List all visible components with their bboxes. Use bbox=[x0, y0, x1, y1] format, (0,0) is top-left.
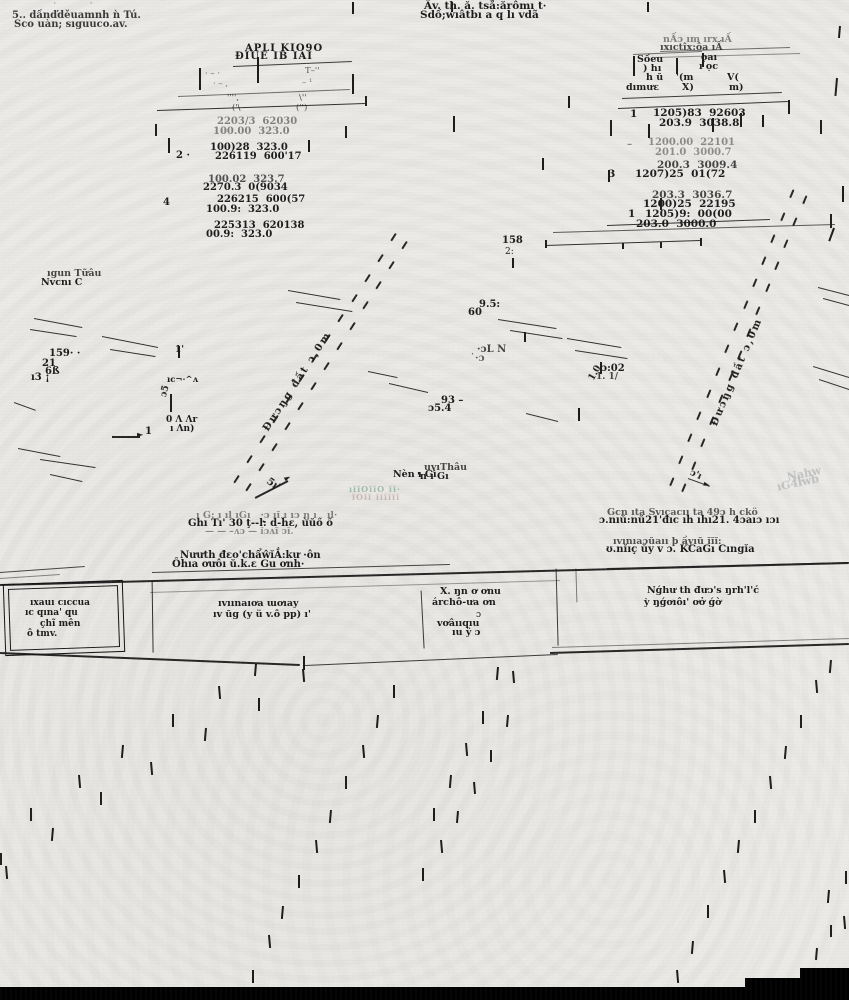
boundary-tick bbox=[440, 840, 443, 853]
rule-line bbox=[34, 318, 82, 328]
arrow-head-icon: ► bbox=[703, 480, 711, 490]
signature-col-line: X. ŋn ơ ơnu bbox=[440, 587, 501, 597]
rule-line bbox=[30, 329, 76, 337]
boundary-tick bbox=[845, 871, 847, 884]
rule-line bbox=[296, 302, 352, 312]
road-dash bbox=[761, 256, 766, 265]
boundary-tick bbox=[842, 186, 844, 202]
boundary-tick bbox=[345, 126, 347, 138]
road-dash bbox=[271, 442, 277, 451]
rule-line bbox=[0, 566, 85, 573]
road-dash bbox=[752, 278, 757, 287]
boundary-tick bbox=[78, 775, 81, 788]
boundary-tick bbox=[365, 96, 367, 106]
boundary-tick bbox=[449, 775, 452, 788]
boundary-tick bbox=[707, 905, 709, 918]
rule-line bbox=[813, 366, 849, 378]
rule-line bbox=[510, 330, 562, 339]
signature-col-line: árchô-ưa ơn bbox=[432, 598, 496, 608]
road-dash bbox=[774, 261, 779, 270]
note-ghost: — — –ʌɔ — ĭɔʌĭ ɔĭ. bbox=[205, 528, 294, 537]
road-dash bbox=[376, 281, 382, 290]
coord-row-index: 2 · bbox=[176, 151, 190, 161]
boundary-tick bbox=[829, 660, 832, 673]
rule-line bbox=[288, 290, 340, 300]
boundary-tick bbox=[815, 680, 818, 693]
rule-line bbox=[40, 459, 95, 468]
boundary-tick bbox=[676, 970, 679, 983]
landuse-code: ˙·ɔ bbox=[470, 354, 485, 364]
rule-line bbox=[567, 338, 621, 348]
signature-box-line: ıxauı cıccua bbox=[30, 599, 90, 608]
rule-line bbox=[819, 379, 849, 390]
road-dash bbox=[802, 195, 807, 204]
scanned-document-page: 5.. dấnďděuamnh ǹ Tú.Sco uàn; sıguuco.av… bbox=[0, 0, 849, 1000]
boundary-tick bbox=[506, 715, 509, 727]
rule-line bbox=[102, 336, 158, 348]
road-dash bbox=[349, 321, 355, 330]
boundary-tick bbox=[622, 243, 624, 249]
boundary-tick bbox=[204, 728, 207, 741]
road-dash bbox=[678, 455, 683, 464]
boundary-tick bbox=[834, 78, 838, 96]
road-dash bbox=[245, 483, 251, 492]
boundary-tick bbox=[843, 916, 846, 929]
scan-edge-bar bbox=[800, 968, 849, 1000]
boundary-tick bbox=[456, 811, 459, 823]
boundary-tick bbox=[633, 56, 635, 76]
boundary-tick bbox=[393, 685, 395, 698]
boundary-tick bbox=[524, 332, 526, 342]
boundary-tick bbox=[433, 808, 435, 821]
road-dash bbox=[783, 239, 788, 248]
boundary-tick bbox=[121, 745, 124, 758]
road-dash bbox=[338, 314, 344, 323]
road-dash bbox=[351, 294, 357, 303]
road-dash bbox=[669, 478, 674, 487]
right-table-header: X) bbox=[682, 83, 694, 93]
boundary-tick bbox=[352, 74, 354, 94]
road-dash bbox=[323, 362, 329, 371]
road-dash bbox=[402, 241, 408, 250]
boundary-tick bbox=[769, 776, 772, 789]
boundary-tick bbox=[815, 948, 818, 960]
signature-box-inner-border bbox=[8, 585, 120, 651]
coord-row: 1207)25 01(72 bbox=[635, 169, 725, 180]
coord-row: 100.9: 323.0 bbox=[206, 205, 279, 215]
road-dash bbox=[743, 300, 748, 309]
road-dash bbox=[363, 301, 369, 310]
boundary-tick bbox=[512, 671, 515, 683]
road-dash bbox=[390, 233, 396, 242]
rule-line bbox=[526, 413, 558, 422]
boundary-tick bbox=[329, 810, 332, 823]
boundary-tick bbox=[352, 2, 354, 14]
rule-line bbox=[368, 371, 397, 378]
rule-line bbox=[110, 349, 155, 357]
boundary-tick bbox=[490, 750, 492, 762]
boundary-tick bbox=[0, 853, 2, 865]
road-dash bbox=[706, 389, 711, 398]
boundary-tick bbox=[647, 2, 649, 12]
coord-row-index: 3 bbox=[608, 169, 615, 180]
boundary-tick bbox=[51, 828, 54, 841]
coord-row-index: 1 bbox=[630, 109, 637, 120]
road-dash bbox=[377, 253, 383, 262]
rule-line bbox=[420, 591, 424, 649]
road-dash bbox=[258, 463, 264, 472]
rule-line bbox=[178, 89, 350, 97]
road-dash bbox=[724, 345, 729, 354]
rule-line bbox=[552, 638, 849, 648]
coord-row-index: 4 bbox=[163, 198, 170, 208]
boundary-tick bbox=[482, 711, 484, 724]
road-dash bbox=[246, 455, 252, 464]
top-center-note-line-2: Sdồ;wıâtbı a q lı vdã bbox=[420, 10, 539, 21]
boundary-tick bbox=[691, 941, 694, 954]
signature-box-line: ô tmv. bbox=[27, 630, 57, 639]
left-table-header-frag: ('') bbox=[296, 104, 307, 113]
road-dash bbox=[310, 382, 316, 391]
map-mark: ı Λn) bbox=[170, 425, 194, 434]
rule-line bbox=[576, 568, 578, 602]
boundary-tick bbox=[258, 698, 260, 711]
signature-box bbox=[3, 580, 125, 656]
boundary-tick bbox=[376, 715, 379, 728]
boundary-tick bbox=[648, 124, 650, 138]
left-table-header-frag: \'' bbox=[299, 94, 307, 103]
road-dash bbox=[733, 323, 738, 332]
boundary-tick bbox=[362, 745, 365, 758]
note-line: ʊ.nĭıç ŭy v ɔ. KCaGı Cıngĭa bbox=[606, 545, 755, 555]
boundary-tick bbox=[723, 870, 726, 883]
boundary-tick bbox=[660, 242, 662, 248]
road-dash bbox=[696, 411, 701, 420]
boundary-tick bbox=[150, 762, 153, 775]
road-dash bbox=[336, 342, 342, 351]
road-dash bbox=[789, 190, 794, 199]
rule-line bbox=[14, 402, 36, 411]
signature-box-line: ıc qına' qu bbox=[25, 609, 78, 618]
boundary-tick bbox=[218, 686, 221, 699]
road-dash bbox=[715, 367, 720, 376]
note-line: Ốhıa ơưôı ŭ.k.ɛ Gu ơnh· bbox=[172, 560, 304, 570]
coord-row-index: – bbox=[627, 139, 632, 150]
rule-line bbox=[498, 319, 556, 329]
rule-line bbox=[112, 436, 140, 438]
rule-line bbox=[622, 92, 782, 99]
boundary-tick bbox=[172, 714, 174, 727]
coord-row: 201.0 3000.7 bbox=[655, 148, 732, 158]
scale-label: 2: bbox=[505, 248, 514, 257]
boundary-tick bbox=[545, 240, 547, 248]
signature-col-line: ıu ÿ ɔ bbox=[452, 628, 480, 638]
road-dash bbox=[780, 212, 785, 221]
boundary-tick bbox=[100, 792, 102, 805]
boundary-tick bbox=[578, 408, 580, 421]
scan-edge-bar bbox=[0, 987, 849, 1000]
boundary-tick bbox=[308, 140, 310, 152]
map-mark: 1' bbox=[175, 346, 184, 355]
coord-row: 2270.3 0(9034 bbox=[203, 183, 288, 193]
rule-line bbox=[389, 383, 428, 393]
parcel-number: ı3 ¡ bbox=[31, 373, 50, 383]
boundary-tick bbox=[170, 394, 172, 412]
boundary-tick bbox=[315, 840, 318, 853]
road-dash bbox=[284, 422, 290, 431]
map-mark: ıc¬·^ʌ bbox=[167, 376, 198, 385]
road-label: Đưɔŋg đất ɔ,0m bbox=[262, 330, 334, 433]
rule-line bbox=[575, 350, 627, 359]
boundary-tick bbox=[838, 26, 841, 38]
road-dash bbox=[259, 435, 265, 444]
road-dash bbox=[765, 284, 770, 293]
coord-row-index: 1 bbox=[628, 209, 635, 220]
right-table-header: dımưɛ bbox=[626, 83, 659, 93]
boundary-tick bbox=[568, 96, 570, 108]
scale-label: 158 bbox=[502, 236, 523, 246]
boundary-tick bbox=[155, 124, 157, 136]
signature-col-line: ıv ŭg (y ü v.ô pp) ı' bbox=[213, 610, 311, 620]
boundary-tick bbox=[199, 68, 201, 90]
signature-col-line: ỳ ŋǵơıôı' ơở ǵờ bbox=[644, 598, 721, 608]
boundary-tick bbox=[281, 906, 284, 919]
signature-box-line: çhĩ mên bbox=[40, 620, 80, 629]
edge-measure: ɔ5.4 bbox=[428, 404, 452, 414]
rule-line bbox=[18, 448, 60, 457]
top-left-note-line-2: Sco uàn; sıguuco.av. bbox=[14, 20, 127, 30]
boundary-tick bbox=[512, 258, 514, 268]
watermark-outline-2: ıG4ŀwb bbox=[776, 473, 820, 493]
boundary-tick bbox=[754, 810, 756, 823]
boundary-tick bbox=[820, 120, 822, 134]
rule-line bbox=[50, 474, 82, 482]
boundary-tick bbox=[345, 776, 347, 789]
left-table-header-frag: · – · bbox=[205, 70, 220, 79]
road-dash bbox=[682, 483, 687, 492]
rule-line bbox=[818, 287, 849, 296]
boundary-tick bbox=[542, 158, 544, 170]
boundary-tick bbox=[610, 120, 612, 136]
rule-line bbox=[0, 574, 60, 579]
boundary-tick bbox=[737, 840, 740, 853]
road-dash bbox=[233, 475, 239, 484]
left-table-title: ĐIUE IB IAI bbox=[235, 52, 313, 62]
boundary-tick bbox=[496, 667, 499, 680]
boundary-tick bbox=[800, 715, 802, 728]
rule-line bbox=[157, 103, 365, 111]
rule-line bbox=[305, 654, 558, 666]
signature-col-line: ıvıınaıơa ɯơıay bbox=[218, 599, 299, 609]
coord-row: 203.9 3038.8 bbox=[659, 118, 739, 129]
boundary-tick bbox=[422, 868, 424, 881]
boundary-tick bbox=[784, 746, 787, 759]
rule-line bbox=[550, 643, 849, 653]
left-table-header-frag: – ¹ bbox=[302, 79, 312, 88]
left-table-header-frag: T–'' bbox=[305, 67, 320, 76]
right-table-header: ı ọc bbox=[699, 62, 718, 72]
owner-name: Nvcnı C bbox=[41, 278, 82, 288]
note-line: ɔ.nıŭ:nŭ21'đıc ıh ıhı21. 4ɔaıɔ ıɔı bbox=[599, 516, 779, 526]
boundary-tick bbox=[5, 866, 8, 879]
edge-measure: 9.5: bbox=[479, 300, 500, 310]
boundary-tick bbox=[473, 782, 476, 794]
road-dash bbox=[297, 402, 303, 411]
road-dash bbox=[364, 274, 370, 283]
edge-measure: 60 bbox=[468, 308, 482, 318]
boundary-tick bbox=[168, 138, 170, 153]
boundary-tick bbox=[762, 115, 764, 127]
boundary-tick bbox=[298, 875, 300, 888]
boundary-tick bbox=[30, 808, 32, 821]
boundary-tick bbox=[268, 935, 271, 948]
rule-line bbox=[823, 298, 849, 306]
boundary-tick bbox=[302, 669, 305, 682]
signature-col-line: Nǵhư th đưɔ's ŋrh'l'ć bbox=[647, 586, 759, 596]
left-table-header-frag: '''', bbox=[227, 94, 239, 103]
boundary-tick bbox=[254, 664, 257, 676]
corner-marks: ˙ ·´ ˙ ` ·˙ ´ bbox=[46, 0, 110, 9]
boundary-tick bbox=[788, 100, 790, 114]
arrow-head-icon: ► bbox=[137, 431, 143, 439]
map-mark: 1 bbox=[145, 427, 152, 437]
watermark-stamp-line-2: ĭOĭĭ ĭĭĭĭĭĭ bbox=[352, 493, 400, 501]
left-table-header-frag: ('\ bbox=[232, 104, 241, 113]
boundary-tick bbox=[830, 925, 832, 937]
road-dash bbox=[770, 234, 775, 243]
road-dash bbox=[756, 306, 761, 315]
coord-row: 100.00 323.0 bbox=[213, 127, 290, 137]
coord-row: 203.0 3000.0 bbox=[636, 219, 716, 230]
road-dash bbox=[700, 439, 705, 448]
boundary-tick bbox=[453, 116, 455, 132]
coord-row: 226119 600'17 bbox=[215, 152, 302, 162]
road-dash bbox=[687, 433, 692, 442]
right-table-header: m) bbox=[729, 83, 744, 93]
boundary-tick bbox=[828, 228, 835, 242]
boundary-tick bbox=[700, 238, 702, 246]
road-dash bbox=[389, 261, 395, 270]
boundary-tick bbox=[827, 890, 830, 903]
boundary-tick bbox=[465, 743, 468, 756]
boundary-tick bbox=[830, 214, 832, 228]
boundary-tick bbox=[252, 970, 254, 983]
left-table-header-frag: · – , bbox=[213, 80, 228, 89]
coord-row: 00.9: 323.0 bbox=[206, 230, 272, 240]
owner-name: Nèn ı Gì bbox=[393, 470, 437, 480]
